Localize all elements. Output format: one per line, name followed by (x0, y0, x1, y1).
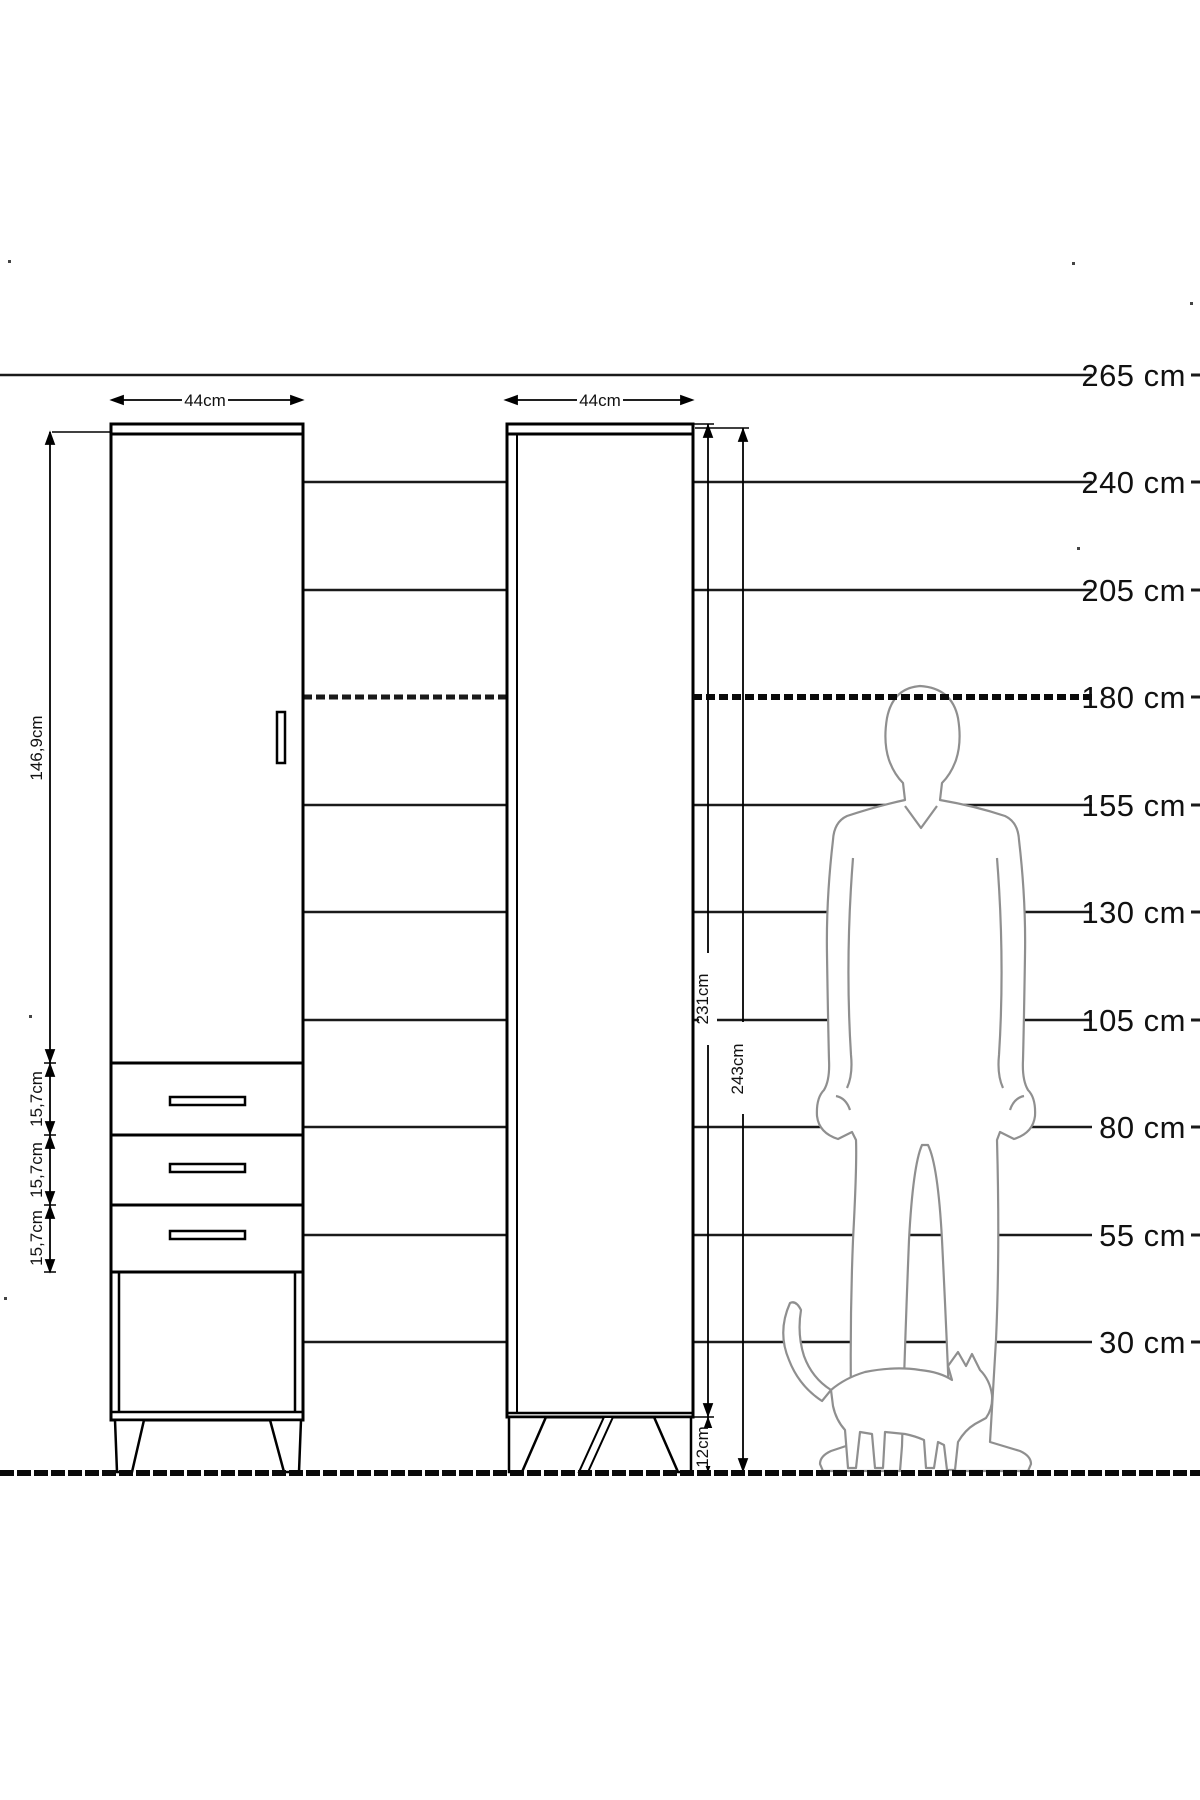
scale-label-30: 30 cm (1099, 1325, 1186, 1360)
scale-label-130: 130 cm (1081, 895, 1186, 930)
left-cabinet-door-handle (277, 712, 285, 763)
drawer-handle-1 (170, 1097, 245, 1105)
right-cabinet-leg-height-label: 12cm (693, 1426, 712, 1468)
scale-label-205: 205 cm (1081, 573, 1186, 608)
drawer-handle-2 (170, 1164, 245, 1172)
scale-label-240: 240 cm (1081, 465, 1186, 500)
scale-label-105: 105 cm (1081, 1003, 1186, 1038)
right-cabinet-leg-strut (579, 1417, 613, 1472)
scale-label-55: 55 cm (1099, 1218, 1186, 1253)
right-cabinet-leg-left (509, 1417, 546, 1472)
right-cabinet-leg-right (654, 1417, 691, 1472)
scale-label-180: 180 cm (1081, 680, 1186, 715)
scale-label-155: 155 cm (1081, 788, 1186, 823)
right-cabinet-total-height-label: 243cm (728, 1043, 747, 1094)
drawer-height-label-2: 15,7cm (27, 1142, 46, 1198)
left-cabinet-width-label: 44cm (184, 391, 226, 410)
right-cabinet-carcass-height-label: 231cm (693, 973, 712, 1024)
left-cabinet-drawing (111, 424, 303, 1472)
drawer-height-label-3: 15,7cm (27, 1210, 46, 1266)
diagram-canvas: 44cm 44cm 146,9cm 15,7cm 15,7cm 15,7cm 2… (0, 0, 1200, 1800)
left-cabinet-leg-right (270, 1420, 301, 1472)
right-cabinet-drawing (507, 424, 693, 1472)
drawer-handle-3 (170, 1231, 245, 1239)
left-cabinet-leg-left (115, 1420, 144, 1472)
furniture-dimension-diagram: 44cm 44cm 146,9cm 15,7cm 15,7cm 15,7cm 2… (0, 0, 1200, 1800)
scale-label-265: 265 cm (1081, 358, 1186, 393)
right-cabinet-width-label: 44cm (579, 391, 621, 410)
left-cabinet-door-height-label: 146,9cm (27, 715, 46, 780)
scale-right-ticks (1191, 375, 1200, 1342)
right-cabinet-body (507, 424, 693, 1417)
cat-tail (783, 1302, 831, 1401)
scale-label-80: 80 cm (1099, 1110, 1186, 1145)
height-scale-labels: 265 cm 240 cm 205 cm 180 cm 155 cm 130 c… (1081, 358, 1186, 1360)
drawer-height-label-1: 15,7cm (27, 1071, 46, 1127)
